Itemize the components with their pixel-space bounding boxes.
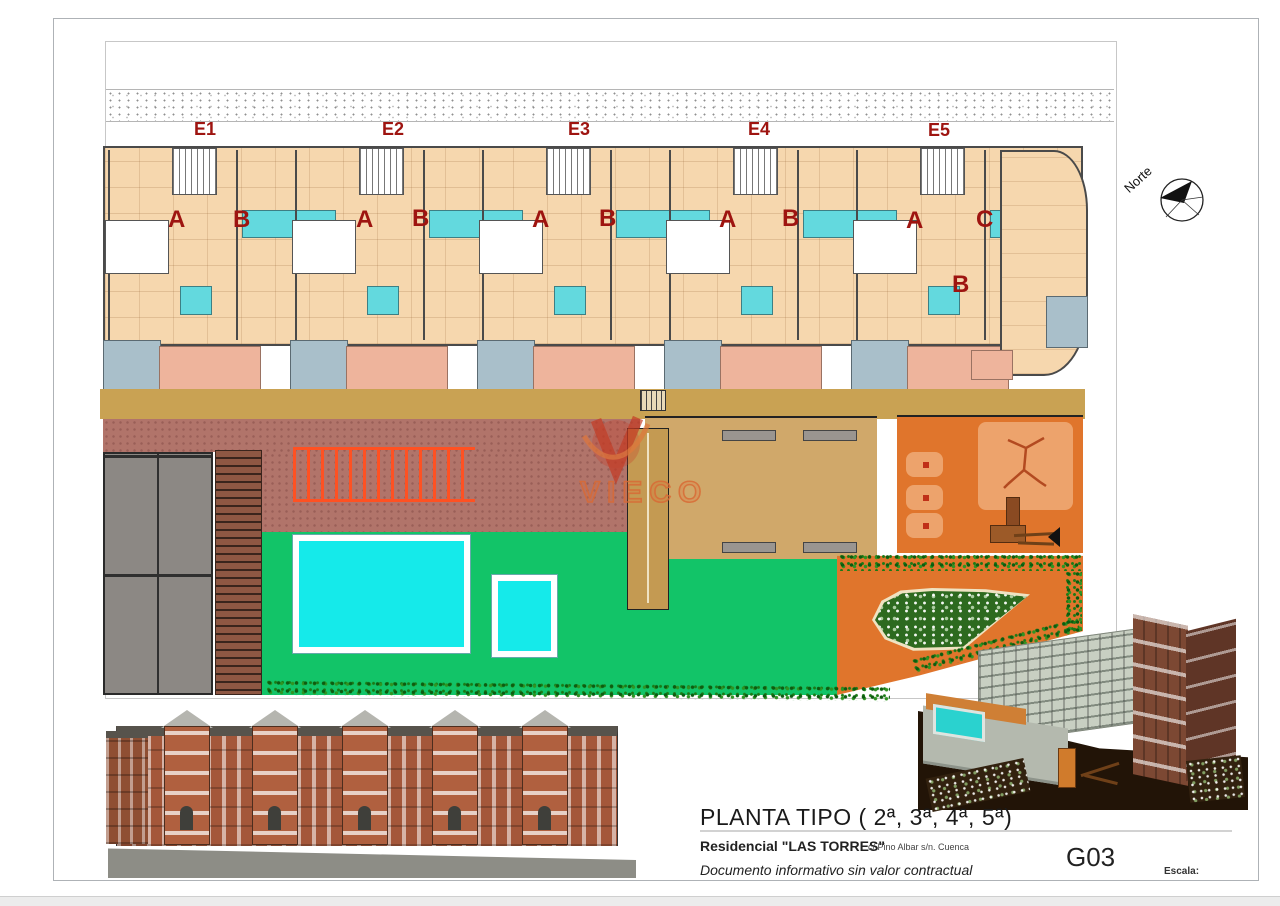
play-panel bbox=[906, 513, 943, 538]
apartment-divider-wall bbox=[236, 150, 238, 340]
north-compass bbox=[1146, 168, 1210, 230]
stairwell bbox=[172, 148, 217, 195]
swing-frame-icon bbox=[978, 422, 1073, 510]
project-name: Residencial "LAS TORRES" bbox=[700, 838, 885, 854]
floor-plan-module bbox=[295, 146, 482, 392]
footpath-steps bbox=[640, 390, 666, 411]
wood-deck-steps bbox=[215, 450, 262, 695]
render-playground-tower bbox=[1058, 748, 1076, 788]
bathroom-small bbox=[180, 286, 212, 315]
elevation-tower bbox=[432, 710, 478, 845]
hedge-strip bbox=[1064, 570, 1082, 632]
apartment-label-a: A bbox=[906, 207, 923, 235]
stairwell bbox=[733, 148, 778, 195]
kitchen-block bbox=[290, 340, 348, 390]
entry-door bbox=[268, 806, 281, 830]
apartment-divider-wall bbox=[610, 150, 612, 340]
plan-sheet-page: { "palette": { "label": "#9e1410", "floo… bbox=[0, 0, 1280, 905]
kitchen-block bbox=[1046, 296, 1088, 348]
bench bbox=[803, 542, 857, 553]
entry-door bbox=[448, 806, 461, 830]
apartment-label-b: B bbox=[412, 205, 429, 233]
sheet-number: G03 bbox=[1066, 842, 1115, 873]
terrace bbox=[533, 346, 635, 392]
section-label-e5: E5 bbox=[928, 120, 950, 141]
disclaimer-note: Documento informativo sin valor contract… bbox=[700, 862, 972, 878]
scale-label: Escala: bbox=[1164, 866, 1199, 877]
apartment-label-a: A bbox=[719, 206, 736, 234]
floor-plan-module bbox=[669, 146, 856, 392]
section-label-e3: E3 bbox=[568, 119, 590, 140]
render-tower-face-left bbox=[1133, 614, 1188, 786]
apartment-label-c: C bbox=[976, 206, 993, 234]
stairwell bbox=[359, 148, 404, 195]
apartment-label-b: B bbox=[782, 205, 799, 233]
play-equipment-icon bbox=[923, 462, 929, 468]
compass-icon bbox=[1146, 168, 1210, 230]
elevation-tower bbox=[164, 710, 210, 845]
section-label-e4: E4 bbox=[748, 119, 770, 140]
street-stipple-band bbox=[106, 89, 1114, 122]
elevation-left-wing bbox=[106, 731, 148, 844]
floor-plan-module bbox=[482, 146, 669, 392]
sheet-title: PLANTA TIPO ( 2ª, 3ª, 4ª, 5ª) bbox=[700, 804, 1012, 831]
apartment-label-b: B bbox=[599, 205, 616, 233]
render-flowerbed bbox=[1186, 755, 1245, 803]
stairwell bbox=[546, 148, 591, 195]
kitchen-block bbox=[103, 340, 161, 390]
bench bbox=[803, 430, 857, 441]
elevation-tower bbox=[522, 710, 568, 845]
apartment-divider-wall bbox=[423, 150, 425, 340]
play-panel bbox=[906, 452, 943, 477]
terrace bbox=[720, 346, 822, 392]
apartment-divider-wall bbox=[797, 150, 799, 340]
bathroom-small bbox=[741, 286, 773, 315]
terrace bbox=[159, 346, 261, 392]
elevation-tower bbox=[252, 710, 298, 845]
kitchen-block bbox=[851, 340, 909, 390]
play-panel-large bbox=[978, 422, 1073, 510]
bench bbox=[722, 542, 776, 553]
bathroom-small bbox=[367, 286, 399, 315]
swimming-pool-large bbox=[293, 535, 470, 653]
pergola-grid bbox=[293, 447, 475, 502]
elevation-tower bbox=[342, 710, 388, 845]
apartment-label-a: A bbox=[168, 206, 185, 234]
play-equipment-icon bbox=[923, 495, 929, 501]
apartment-divider-wall bbox=[984, 150, 986, 340]
lightwell bbox=[105, 220, 169, 274]
apartment-label-a: A bbox=[356, 206, 373, 234]
kitchen-block bbox=[664, 340, 722, 390]
vieco-logo-text: VIECO bbox=[580, 476, 708, 509]
terrace bbox=[346, 346, 448, 392]
entry-door bbox=[180, 806, 193, 830]
bench bbox=[722, 430, 776, 441]
stairwell bbox=[920, 148, 965, 195]
apartment-label-a: A bbox=[532, 206, 549, 234]
entry-door bbox=[538, 806, 551, 830]
vieco-watermark-logo: VIECO bbox=[572, 414, 722, 509]
swimming-pool-small bbox=[492, 575, 557, 657]
service-building-blocks bbox=[103, 452, 213, 695]
bathroom-small bbox=[554, 286, 586, 315]
play-panel bbox=[906, 485, 943, 510]
kitchen-block bbox=[477, 340, 535, 390]
hedge-strip bbox=[838, 553, 1083, 571]
vieco-logo-icon: VIECO bbox=[572, 414, 722, 509]
terrace bbox=[971, 350, 1013, 380]
section-label-e1: E1 bbox=[194, 119, 216, 140]
section-label-e2: E2 bbox=[382, 119, 404, 140]
project-address: c/ Pino Albar s/n. Cuenca bbox=[868, 842, 969, 852]
lightwell bbox=[292, 220, 356, 274]
play-equipment-icon bbox=[923, 523, 929, 529]
floor-plan-module bbox=[108, 146, 295, 392]
apartment-label-b: B bbox=[952, 271, 969, 299]
entry-door bbox=[358, 806, 371, 830]
apartment-label-b: B bbox=[233, 206, 250, 234]
